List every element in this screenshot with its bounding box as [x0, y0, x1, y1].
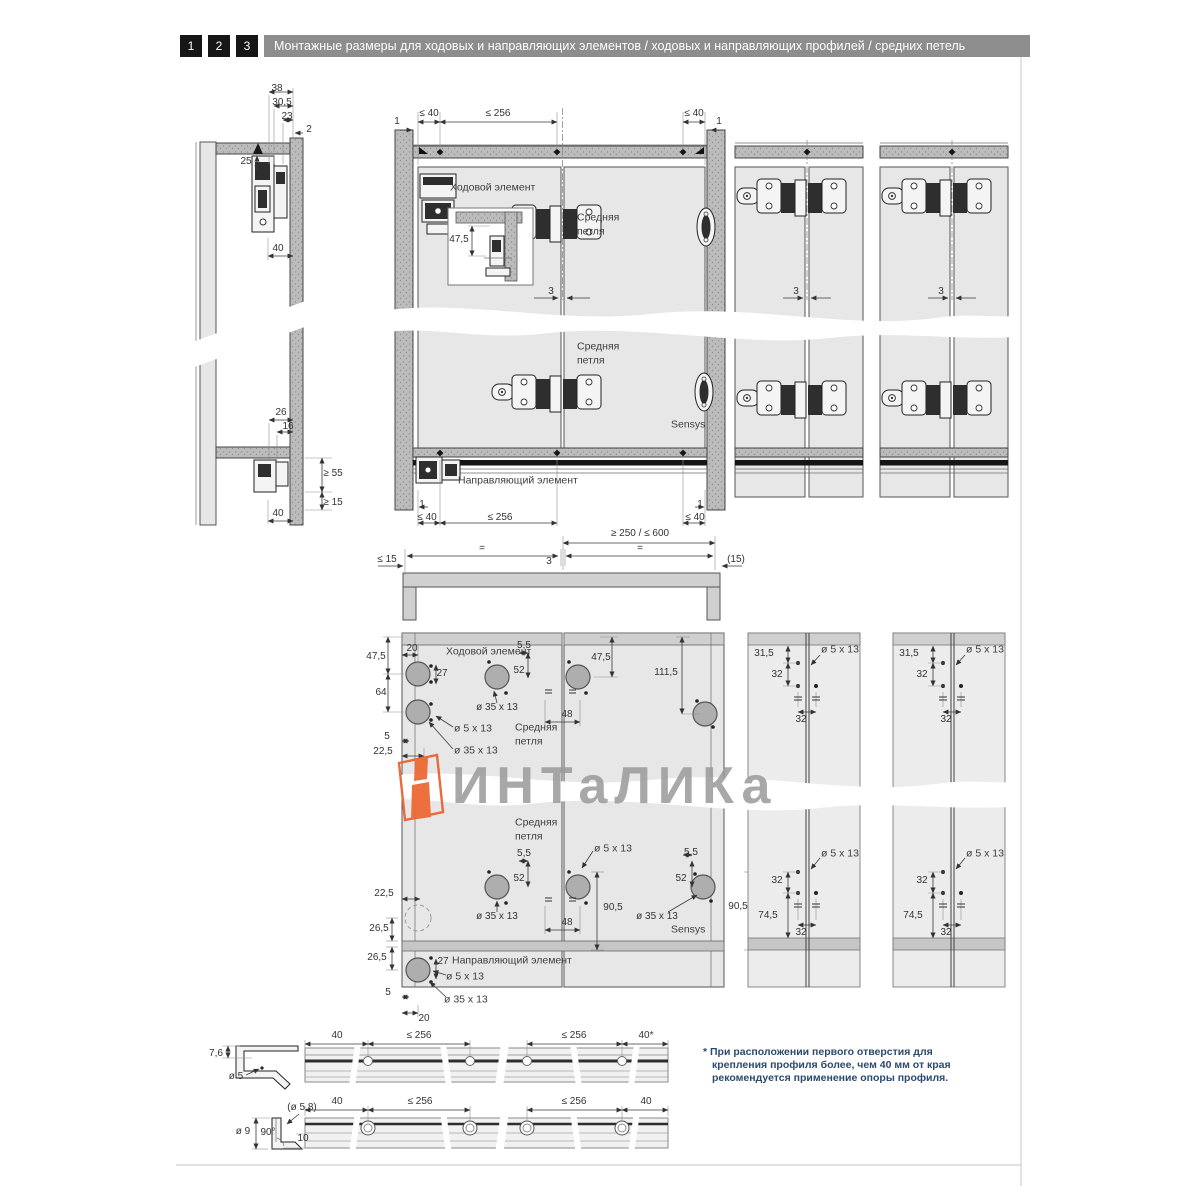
dim-5-5-left: 5,5: [517, 641, 531, 651]
dim-22-5-top: 22,5: [373, 747, 392, 757]
dim-32-p1-b: 32: [795, 715, 806, 725]
dim-7-6: 7,6: [209, 1049, 223, 1059]
dim-3-plan: 3: [546, 557, 552, 567]
step-badge-2: 2: [208, 35, 230, 57]
middle-hinge-label-drill-top: Средняя петля: [515, 721, 571, 748]
dim-3-gap-pair2: 3: [938, 287, 944, 297]
guide-element-label: Направляющий элемент: [458, 474, 578, 487]
callout-dia35x13-right: ø 35 x 13: [636, 912, 678, 922]
callout-dia5x13-p2-top: ø 5 x 13: [966, 643, 1004, 656]
dim-le256-strip1-a: ≤ 256: [407, 1031, 432, 1041]
dim-le256-bottom: ≤ 256: [488, 513, 513, 523]
dim-52-right: 52: [675, 874, 686, 884]
dim-5-5-mid: 5,5: [517, 849, 531, 859]
dim-le40-bottom-left: ≤ 40: [417, 513, 436, 523]
callout-dia35x13-bottom: ø 35 x 13: [444, 993, 488, 1006]
dim-40-side-top: 40: [272, 244, 283, 254]
callout-dia35x13-mid: ø 35 x 13: [476, 703, 518, 713]
profile-strips: [305, 1040, 668, 1151]
dim-5-top: 5: [384, 732, 390, 742]
dim-2: 2: [306, 125, 312, 135]
callout-90deg: 90°: [260, 1128, 275, 1138]
dim-40-side-bottom: 40: [272, 509, 283, 519]
dim-26-5-b: 26,5: [367, 953, 386, 963]
dim-5-5-right: 5,5: [684, 848, 698, 858]
middle-hinge-label-bottom: Средняя петля: [577, 340, 633, 367]
sensys-label-drill: Sensys: [671, 923, 705, 936]
dim-90-5-right: 90,5: [728, 902, 747, 912]
page-title: Монтажные размеры для ходовых и направля…: [264, 35, 1030, 57]
side-section-view: [176, 88, 332, 525]
dim-16: 16: [282, 422, 293, 432]
dim-31-5-p1: 31,5: [754, 649, 773, 659]
dim-25: 25: [240, 157, 251, 167]
dim-3-gap: 3: [548, 287, 554, 297]
dim-26: 26: [275, 408, 286, 418]
dim-40-strip1: 40: [331, 1031, 342, 1041]
dim-1-bottom-right: 1: [697, 500, 703, 510]
dim-40-strip2-r: 40: [640, 1097, 651, 1107]
dim-48-mid: 48: [561, 918, 572, 928]
dim-30-5: 30,5: [272, 98, 291, 108]
dim-52-mid: 52: [513, 874, 524, 884]
dim-32-p1-a: 32: [771, 670, 782, 680]
middle-hinge-label-drill-mid: Средняя петля: [515, 816, 571, 843]
catalog-page: 1 2 3 Монтажные размеры для ходовых и на…: [0, 0, 1200, 1200]
dim-32-p1-c: 32: [771, 876, 782, 886]
dim-equal-left: =: [479, 544, 485, 554]
dim-le40-bottom-right: ≤ 40: [685, 513, 704, 523]
dim-90-5-left: 90,5: [603, 903, 622, 913]
plan-view: [378, 536, 742, 620]
dim-10: 10: [297, 1134, 308, 1144]
dim-52-left: 52: [513, 666, 524, 676]
dim-3-gap-pair1: 3: [793, 287, 799, 297]
dim-32-p1-d: 32: [795, 928, 806, 938]
dim-74-5-p1: 74,5: [758, 911, 777, 921]
dim-20-top: 20: [406, 644, 417, 654]
dim-47-5-detail: 47,5: [449, 235, 468, 245]
callout-dia5x13-bottom: ø 5 x 13: [446, 970, 484, 983]
step-badge-1: 1: [180, 35, 202, 57]
guide-element-label-drill: Направляющий элемент: [452, 954, 572, 967]
callout-dia5x13-p2-bottom: ø 5 x 13: [966, 847, 1004, 860]
dim-le256-top: ≤ 256: [486, 109, 511, 119]
dim-32-p2-d: 32: [940, 928, 951, 938]
callout-dia5x13-top: ø 5 x 13: [454, 722, 492, 735]
callout-dia35x13-top: ø 35 x 13: [454, 744, 498, 757]
dim-equal-right: =: [637, 544, 643, 554]
dim-32-p2-a: 32: [916, 670, 927, 680]
runner-element-label: Ходовой элемент: [450, 181, 535, 194]
dim-47-5-drill-right: 47,5: [591, 653, 610, 663]
dim-le15: ≤ 15: [377, 555, 396, 565]
dim-20-bottom: 20: [418, 1014, 429, 1024]
technical-drawing: [0, 0, 1200, 1200]
callout-dia5x13-p1-bottom: ø 5 x 13: [821, 847, 859, 860]
dim-le256-strip1-b: ≤ 256: [562, 1031, 587, 1041]
dim-23: 23: [281, 112, 292, 122]
dim-26-5-a: 26,5: [369, 924, 388, 934]
callout-dia9: ø 9: [236, 1127, 250, 1137]
callout-dia5x13-mid: ø 5 x 13: [594, 842, 632, 855]
footnote-text: * При расположении первого отверстия для…: [703, 1046, 988, 1084]
dim-40-star-strip1: 40*: [638, 1031, 653, 1041]
dim-111-5: 111,5: [654, 668, 678, 678]
dim-ge55: ≥ 55: [323, 469, 342, 479]
dim-40-strip2-l: 40: [331, 1097, 342, 1107]
dim-27-bottom: 27: [437, 957, 448, 967]
dim-le40-top-right: ≤ 40: [684, 109, 703, 119]
dim-31-5-p2: 31,5: [899, 649, 918, 659]
dim-27-top: 27: [436, 669, 447, 679]
dim-ge15: ≥ 15: [323, 498, 342, 508]
dim-22-5-mid: 22,5: [374, 889, 393, 899]
dim-32-p2-c: 32: [916, 876, 927, 886]
dim-48-top: 48: [561, 710, 572, 720]
callout-dia5-8: (ø 5,8): [287, 1103, 316, 1113]
watermark-text: ИНТаЛИКа: [452, 760, 777, 812]
dim-64: 64: [375, 688, 386, 698]
dim-le256-strip2-b: ≤ 256: [562, 1097, 587, 1107]
dim-38: 38: [271, 84, 282, 94]
sensys-label: Sensys: [671, 418, 705, 431]
step-badge-3: 3: [236, 35, 258, 57]
dim-32-p2-b: 32: [940, 715, 951, 725]
middle-hinge-label-top: Средняя петля: [577, 211, 633, 238]
dim-1-top-right: 1: [716, 117, 722, 127]
dim-74-5-p2: 74,5: [903, 911, 922, 921]
dim-1-top-left: 1: [394, 117, 400, 127]
dim-47-5-drill-left: 47,5: [366, 652, 385, 662]
dim-le40-top-left: ≤ 40: [419, 109, 438, 119]
dim-5-bottom: 5: [385, 988, 391, 998]
dim-le256-strip2-a: ≤ 256: [408, 1097, 433, 1107]
callout-dia5: ø 5: [229, 1072, 243, 1082]
callout-dia35x13-mid2: ø 35 x 13: [476, 912, 518, 922]
callout-dia5x13-p1-top: ø 5 x 13: [821, 643, 859, 656]
dim-range-250-600: ≥ 250 / ≤ 600: [611, 529, 669, 539]
dim-15-paren: (15): [727, 555, 745, 565]
dim-1-bottom-left: 1: [419, 500, 425, 510]
